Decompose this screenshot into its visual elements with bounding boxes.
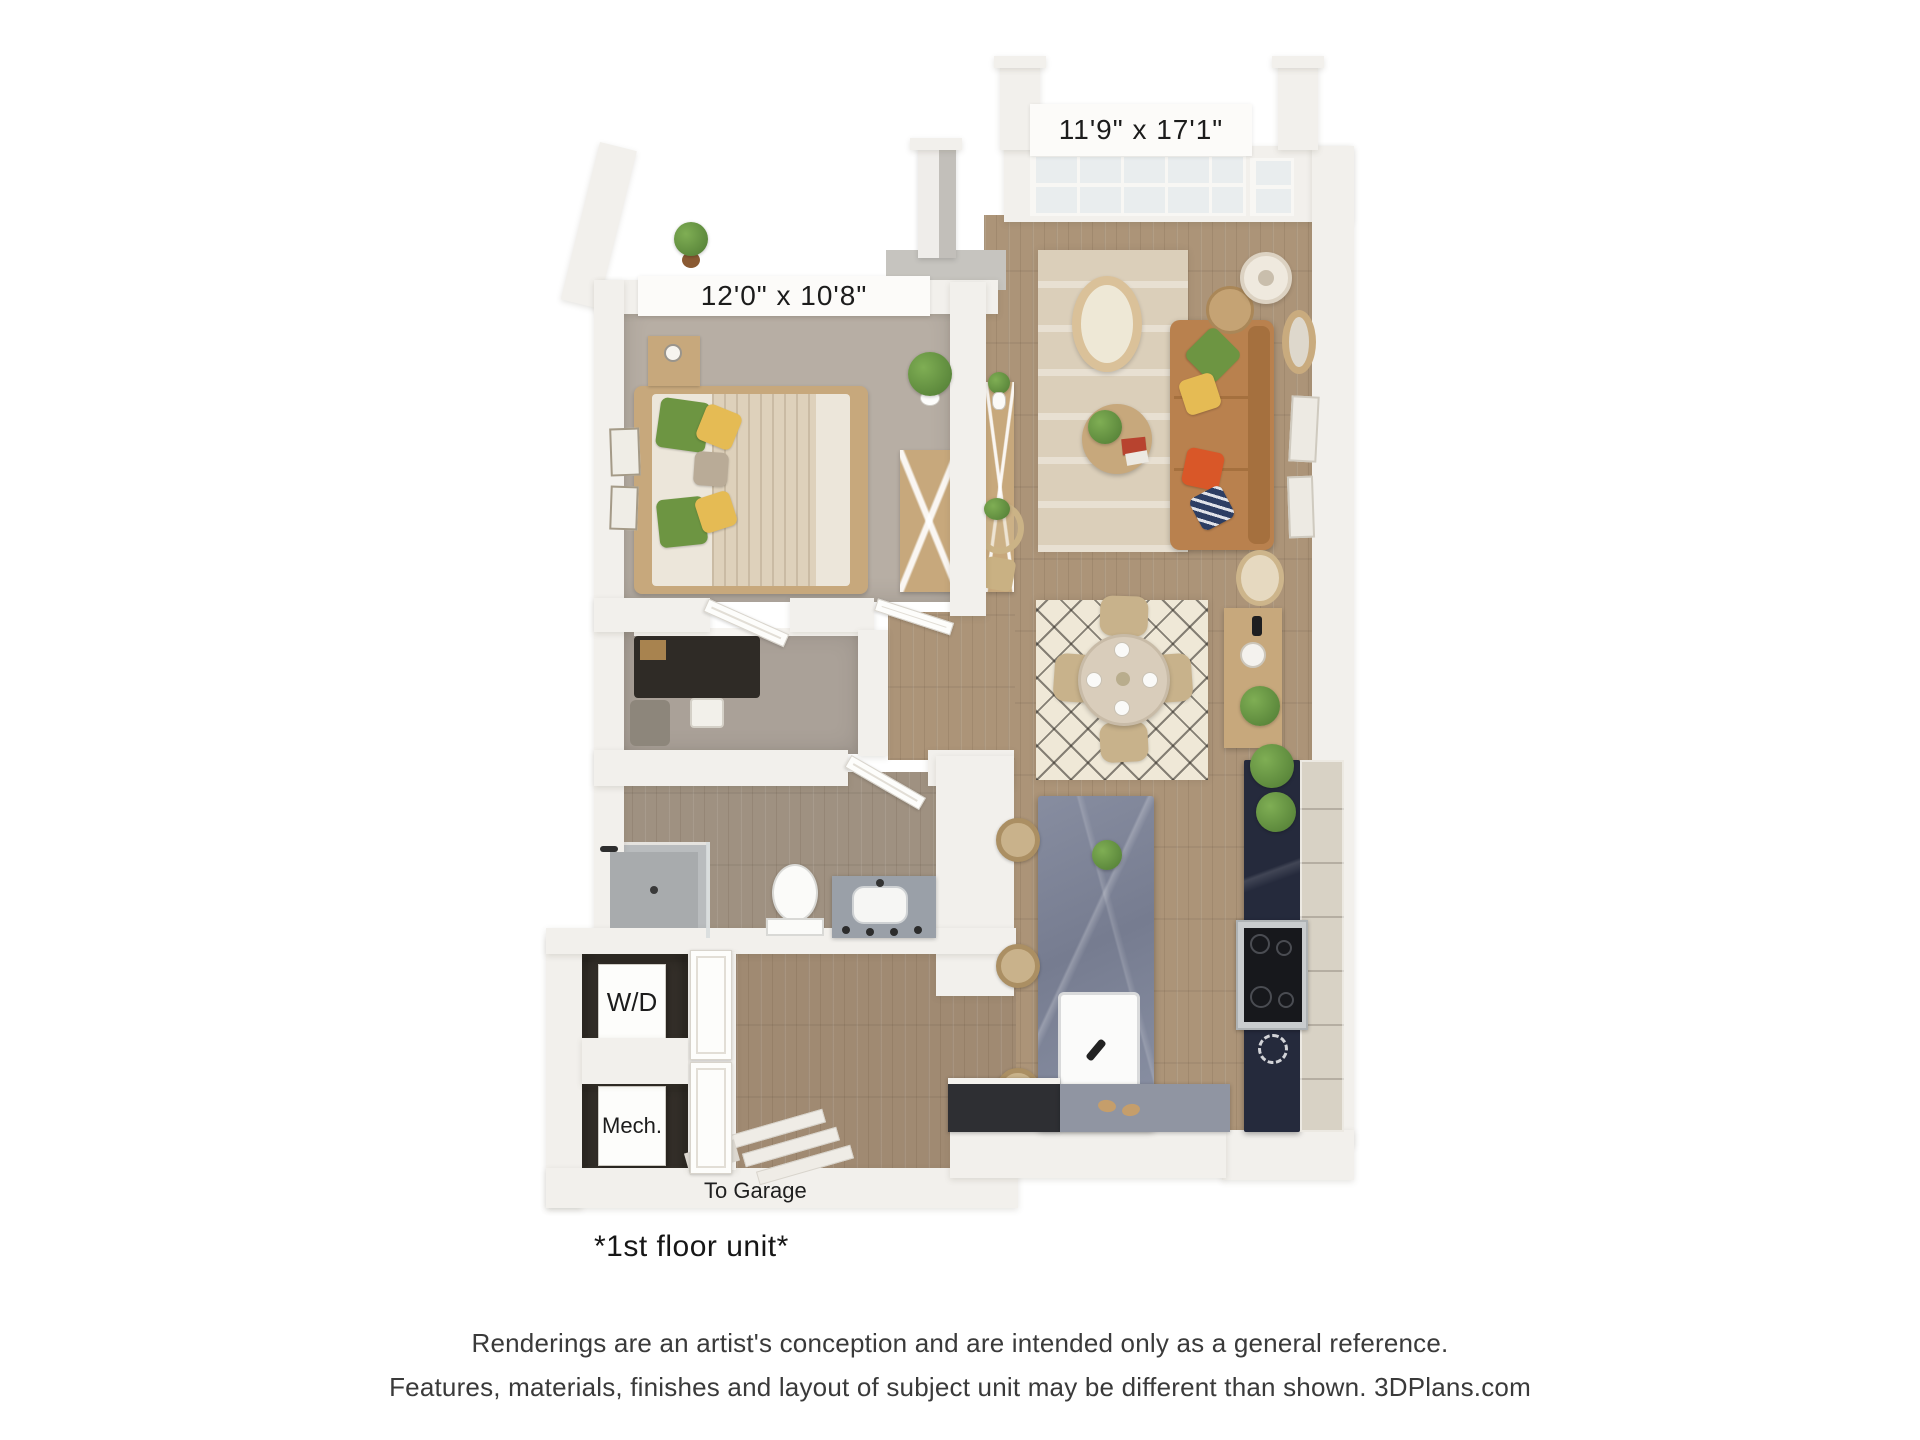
- bedroom-dimension-strip: 12'0" x 10'8": [638, 276, 930, 316]
- entry-console-vase: [992, 392, 1006, 410]
- shower-head: [600, 846, 618, 852]
- vanity-knob-4: [914, 926, 922, 934]
- wall-kitchen-bottom: [950, 1132, 1226, 1178]
- mechanical-label: Mech.: [602, 1113, 662, 1139]
- bed-pillow-gray: [693, 451, 729, 487]
- wall-bedroom-bottom-a: [594, 598, 710, 632]
- porch-column-left-cap: [994, 56, 1046, 68]
- dining-centerpiece: [1116, 672, 1130, 686]
- sofa-pillow-orange: [1180, 446, 1225, 491]
- exterior-plant: [674, 222, 708, 256]
- mechanical-closet-door: [690, 1062, 732, 1174]
- toilet-tank: [766, 918, 824, 936]
- unit-note: *1st floor unit*: [594, 1230, 789, 1264]
- closet-storage-box: [640, 640, 666, 660]
- bar-stool-1: [996, 818, 1040, 862]
- washer-dryer-label: W/D: [607, 987, 658, 1018]
- disclaimer-line-2: Features, materials, finishes and layout…: [0, 1372, 1920, 1403]
- accent-chair: [1072, 276, 1142, 372]
- entry-basket-plant: [984, 498, 1010, 520]
- entry-hall-floor: [888, 612, 1015, 760]
- living-dimension-strip: 11'9" x 17'1": [1030, 104, 1252, 156]
- wall-closet-right: [858, 630, 888, 756]
- porch-column-right: [1278, 64, 1318, 150]
- console-plant: [1240, 686, 1280, 726]
- bedroom-wall-art-2: [609, 486, 639, 531]
- woven-floor-lamp: [1236, 550, 1284, 606]
- counter-wreath-decor: [1258, 1034, 1288, 1064]
- mechanical-unit: Mech.: [598, 1086, 666, 1166]
- entry-counter-gray: [1060, 1084, 1230, 1132]
- entry-stool: [981, 556, 1016, 593]
- floor-plan-rendering: W/D Mech. 12'0" x 10'8" 11'9" x 17'1": [0, 0, 1920, 1440]
- bedroom-dimension-label: 12'0" x 10'8": [701, 280, 868, 312]
- console-bottle: [1252, 616, 1262, 636]
- burner-3: [1250, 986, 1272, 1008]
- island-plant: [1092, 840, 1122, 870]
- wall-closet-bath: [594, 750, 848, 786]
- dining-chair-bottom: [1099, 721, 1149, 763]
- living-dimension-label: 11'9" x 17'1": [1059, 114, 1223, 146]
- round-wall-mirror: [1282, 310, 1316, 374]
- place-setting-top: [1114, 642, 1130, 658]
- shower-glass-panel: [706, 842, 710, 938]
- table-lamp-finial: [1258, 270, 1274, 286]
- living-french-doors: [1030, 154, 1246, 216]
- vanity-knob-2: [866, 928, 874, 936]
- bedroom-plant: [908, 352, 952, 396]
- wall-bedroom-right: [950, 282, 986, 616]
- dining-chair-top: [1099, 595, 1148, 637]
- living-side-window: [1250, 158, 1294, 216]
- wall-frame-2: [1287, 476, 1315, 539]
- washer-dryer-unit: W/D: [598, 964, 666, 1040]
- wall-bedroom-bottom-b: [790, 598, 874, 632]
- closet-basket: [690, 698, 724, 728]
- counter-plant-2: [1256, 792, 1296, 832]
- burner-2: [1276, 940, 1292, 956]
- laundry-closet-door: [690, 950, 732, 1060]
- vanity-knob-3: [890, 928, 898, 936]
- bar-stool-2: [996, 944, 1040, 988]
- disclaimer-line-1: Renderings are an artist's conception an…: [0, 1328, 1920, 1359]
- closet-chair: [630, 700, 670, 746]
- toilet-bowl: [772, 864, 818, 922]
- entry-column-cap: [910, 138, 962, 150]
- sofa-back-cushion: [1248, 326, 1270, 544]
- burner-1: [1250, 934, 1270, 954]
- vanity-sink: [852, 886, 908, 924]
- shower-drain: [650, 886, 658, 894]
- vanity-faucet: [876, 879, 884, 887]
- wall-laundry-divider: [582, 1038, 688, 1084]
- vanity-knob-1: [842, 926, 850, 934]
- wall-frame-1: [1288, 395, 1319, 462]
- bedroom-wall-art-1: [609, 427, 641, 476]
- console-bowl: [1240, 642, 1266, 668]
- nightstand-lamp: [664, 344, 682, 362]
- wall-bottom-right: [1222, 1130, 1354, 1180]
- entry-console-plant: [988, 372, 1010, 394]
- entry-column: [918, 146, 956, 258]
- entry-bench-dark: [948, 1078, 1060, 1132]
- porch-column-right-cap: [1272, 56, 1324, 68]
- burner-4: [1278, 992, 1294, 1008]
- to-garage-label: To Garage: [704, 1178, 807, 1204]
- place-setting-bottom: [1114, 700, 1130, 716]
- place-setting-right: [1142, 672, 1158, 688]
- coffee-table-plant: [1088, 410, 1122, 444]
- counter-plant-1: [1250, 744, 1294, 788]
- place-setting-left: [1086, 672, 1102, 688]
